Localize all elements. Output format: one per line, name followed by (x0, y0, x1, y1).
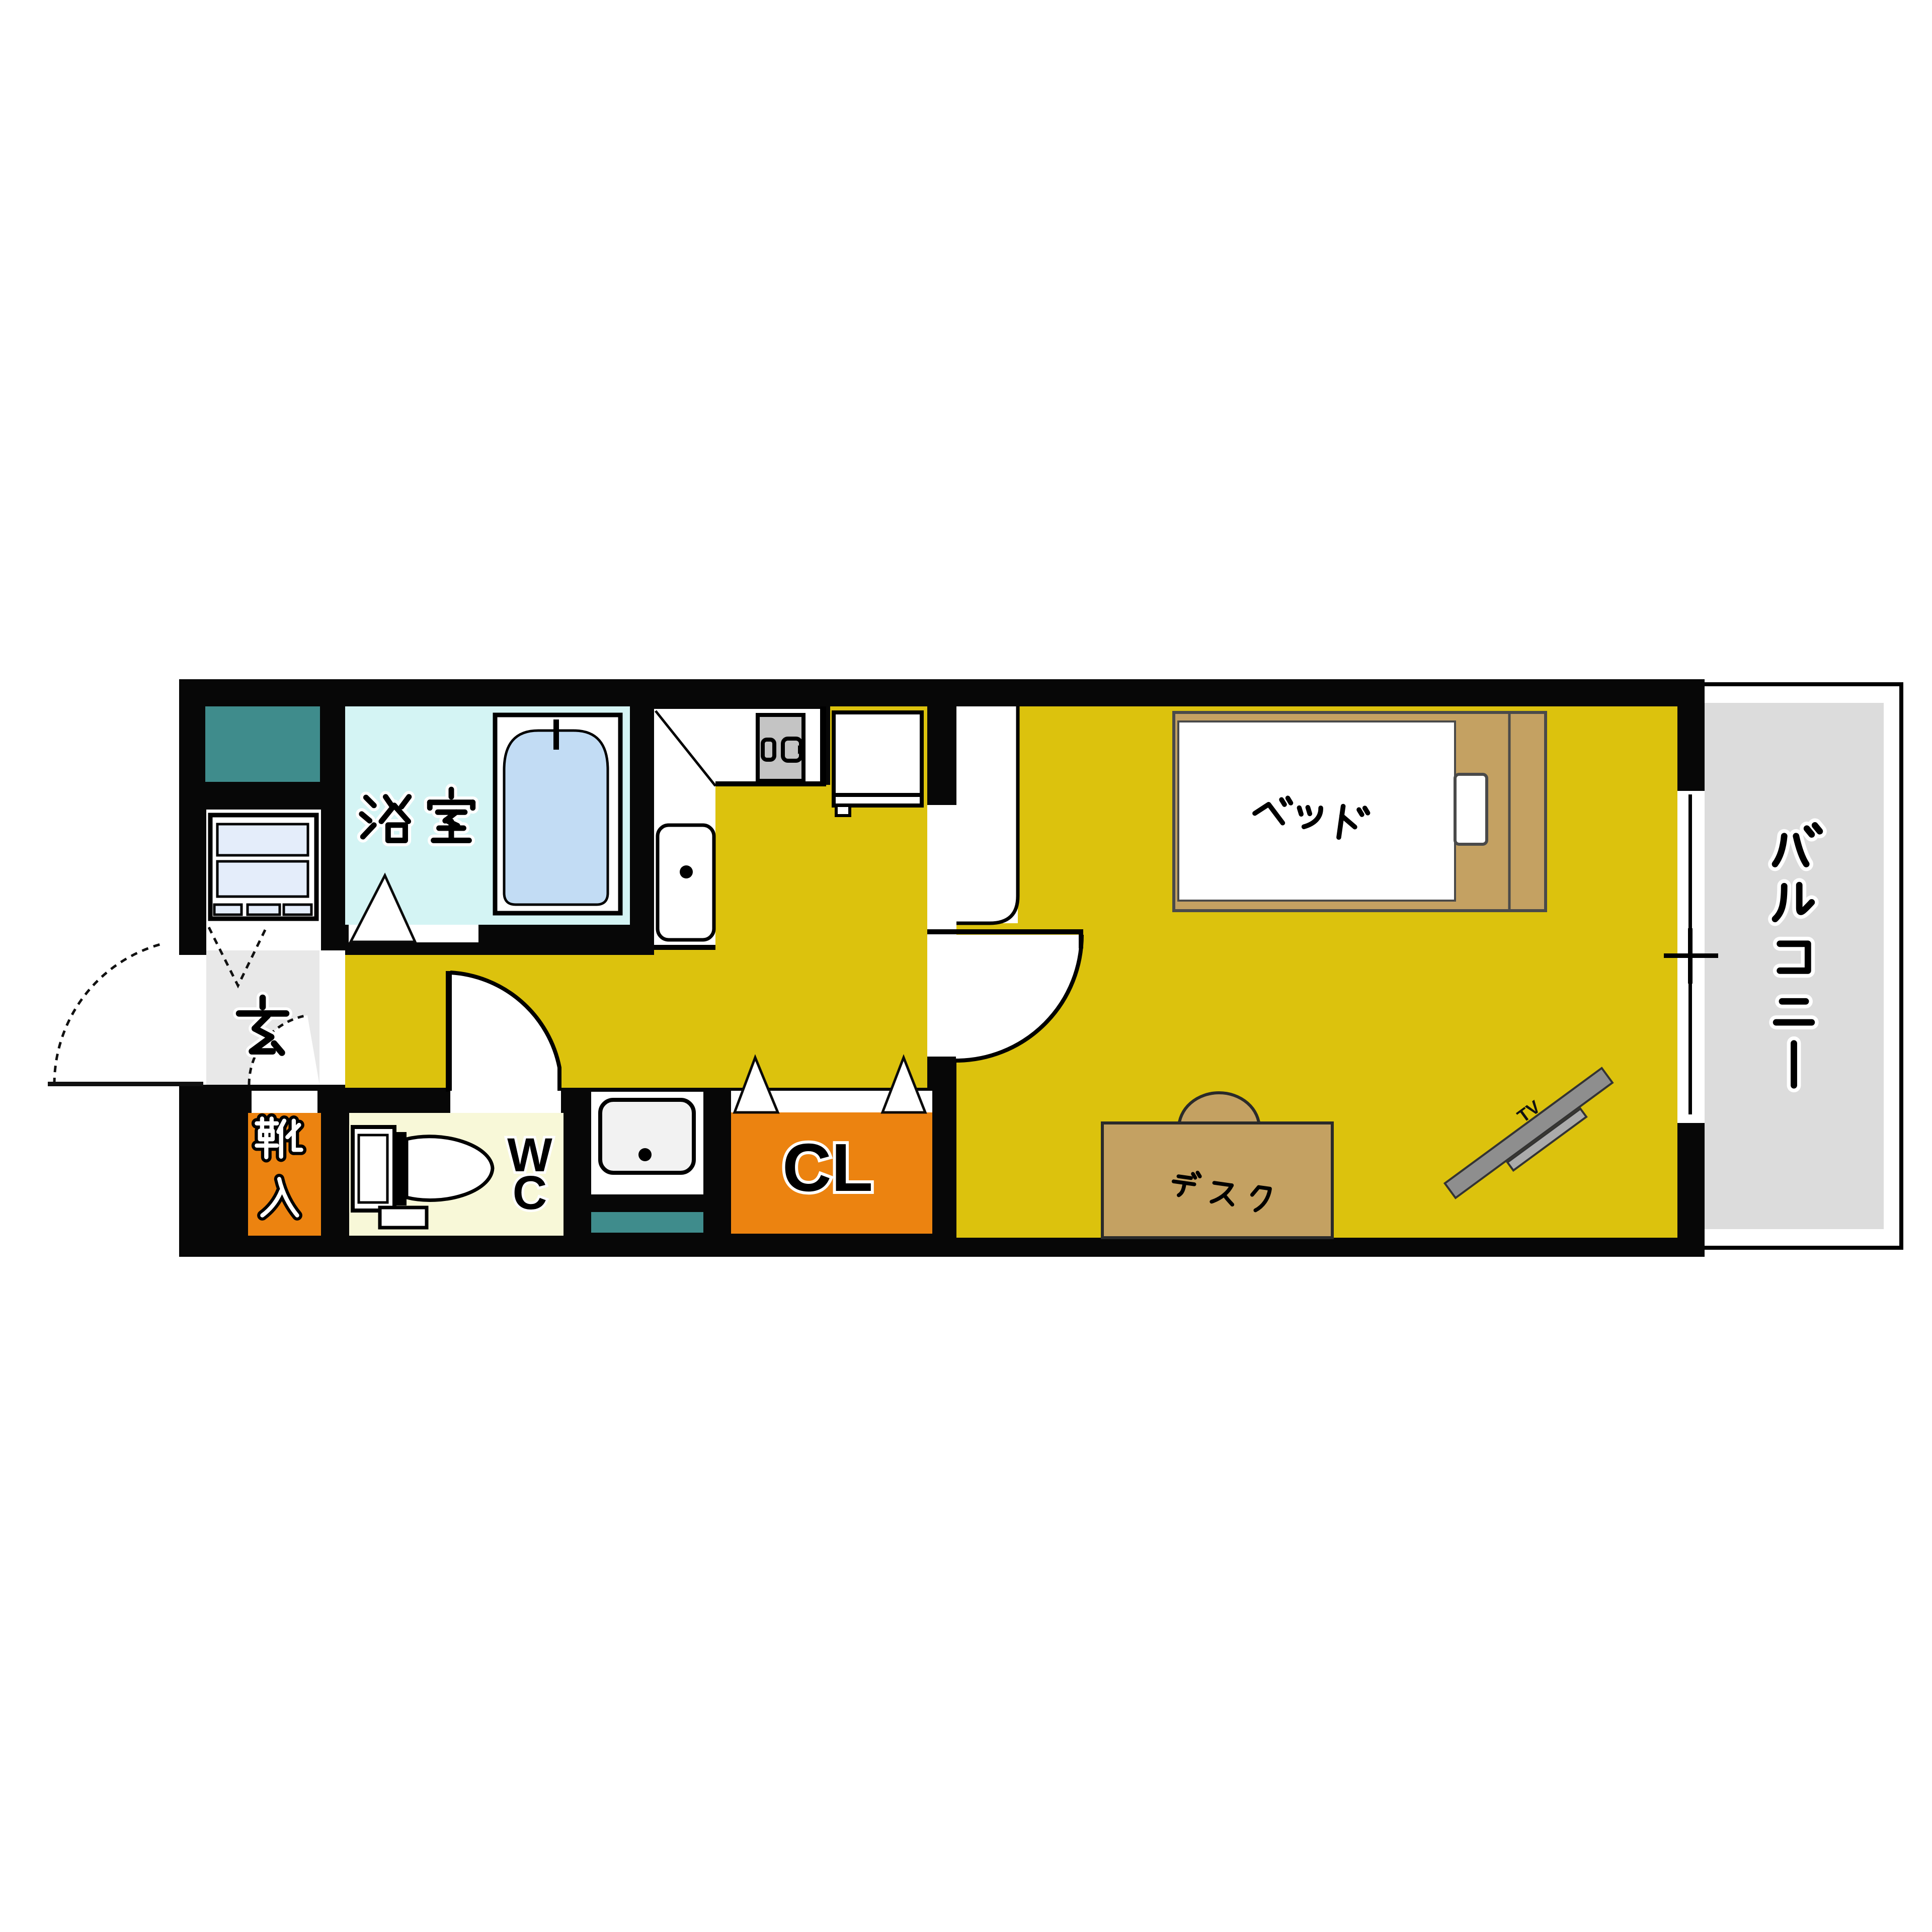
svg-text:C: C (513, 1166, 547, 1220)
svg-text:CL: CL (782, 1130, 873, 1205)
